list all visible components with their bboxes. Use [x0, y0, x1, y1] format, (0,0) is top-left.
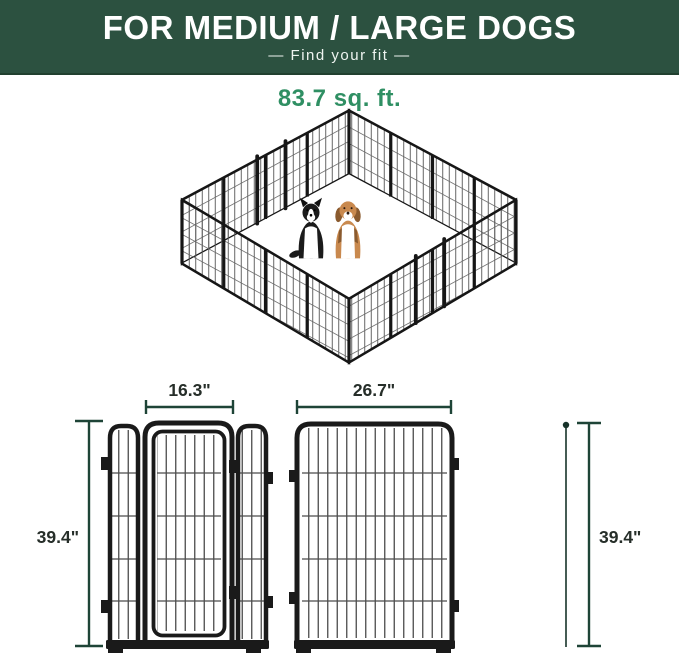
height-left-dim-line: [75, 421, 103, 646]
tab: [289, 470, 297, 482]
height-right-label: 39.4": [599, 527, 641, 547]
panel-base: [294, 640, 455, 649]
panel-width-label: 26.7": [353, 380, 395, 400]
header-title: FOR MEDIUM / LARGE DOGS: [103, 10, 577, 46]
panel-foot: [246, 647, 261, 653]
tab: [264, 472, 273, 484]
height-right-dim-line: [577, 423, 601, 646]
panel-foot: [108, 647, 123, 653]
dimension-diagram: 16.3" 26.7" 39.4" 39.4": [0, 380, 679, 654]
height-left-label: 39.4": [37, 527, 79, 547]
tab: [101, 600, 109, 613]
playpen-illustration: [134, 102, 544, 370]
header-subtitle: — Find your fit —: [268, 47, 410, 64]
tab: [264, 596, 273, 608]
panel-base: [106, 640, 269, 649]
panel-foot: [436, 647, 451, 653]
tab: [289, 592, 297, 604]
door-width-dim-line: [146, 400, 233, 414]
door-panel-diagram: [101, 423, 273, 653]
panel-foot: [296, 647, 311, 653]
tab: [101, 457, 109, 470]
door-width-label: 16.3": [168, 380, 210, 400]
tab: [451, 458, 459, 470]
tab: [451, 600, 459, 612]
door-hinge: [229, 586, 240, 599]
product-infographic: FOR MEDIUM / LARGE DOGS — Find your fit …: [0, 0, 679, 654]
door-hinge: [229, 460, 240, 473]
panel-width-dim-line: [297, 400, 451, 414]
large-panel-diagram: [289, 424, 459, 653]
header-banner: FOR MEDIUM / LARGE DOGS — Find your fit …: [0, 0, 679, 75]
extension-line-dot: [563, 422, 569, 428]
